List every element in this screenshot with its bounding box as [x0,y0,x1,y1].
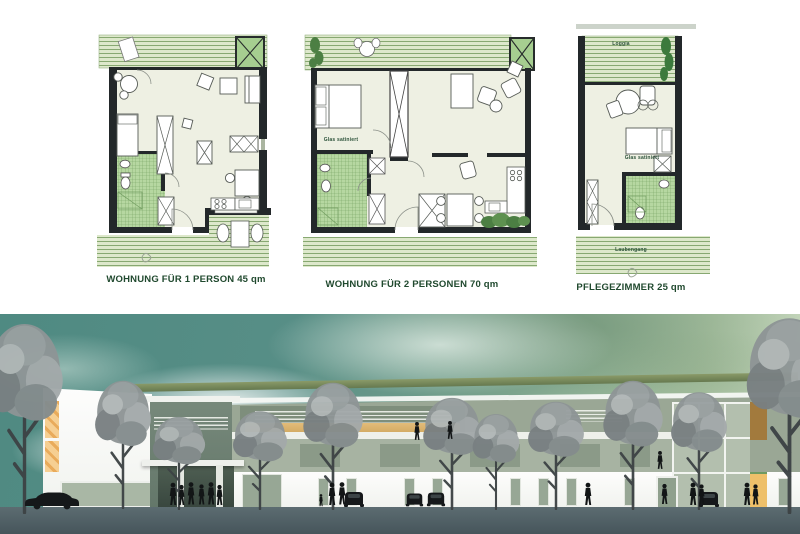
plan3-glass-note: Glas satiniert [622,155,662,161]
street-tree [0,314,67,514]
street-tree [470,409,522,510]
plan3-walkway-bottom [576,236,710,274]
floorplan-2-persons: Glas satiniert [303,18,537,270]
pedestrian [413,421,421,442]
pedestrian [337,481,347,507]
plan2-shaft [390,71,408,157]
pedestrian [751,483,760,507]
plan2-bedroom [315,85,361,128]
floorplan-care-room: Loggia Glas satiniert Laubengang [576,10,710,290]
plan1-balcony-top [99,35,267,69]
pedestrian [656,449,664,472]
plan3-title: PFLEGEZIMMER 25 qm [531,282,731,293]
plan2-balcony-top [305,35,534,70]
plan3-loggia-note: Loggia [601,41,641,47]
pedestrian [197,483,206,507]
plan3-walkway-note: Laubengang [591,247,671,253]
plan1-kitchen-window [215,210,257,213]
pedestrian [697,483,706,507]
pedestrian-child [318,494,324,507]
parked-car-rear [405,491,424,508]
plan2-walkway-bottom [303,237,537,267]
pedestrian [446,419,454,442]
entrance-roof-slab [143,396,240,402]
floorplan-2-drawing [303,18,537,270]
pedestrian [583,482,593,507]
street-tree [92,374,154,509]
plan2-title: WOHNUNG FÜR 2 PERSONEN 70 qm [312,279,512,290]
pedestrian [215,484,224,507]
plan3-roof-slab [576,24,696,29]
street-tree [600,374,666,510]
architectural-sheet: WOHNUNG FÜR 1 PERSON 45 qm [0,0,800,534]
pedestrian [186,481,196,507]
plan2-glass-note: Glas satiniert [320,137,362,143]
street-tree [230,406,290,510]
plan1-kitchen [211,198,259,210]
parked-car-rear [426,490,446,508]
building-elevation [0,314,800,534]
pedestrian [660,482,669,507]
pedestrian [327,482,337,507]
pedestrian [177,484,186,507]
street-ground [0,507,800,534]
floorplan-1-person [97,18,273,270]
street-tree [525,396,587,510]
upper-window [380,444,420,467]
plan1-title: WOHNUNG FÜR 1 PERSON 45 qm [86,274,286,285]
floorplan-1-drawing [97,18,273,270]
parked-car-side [24,490,80,510]
